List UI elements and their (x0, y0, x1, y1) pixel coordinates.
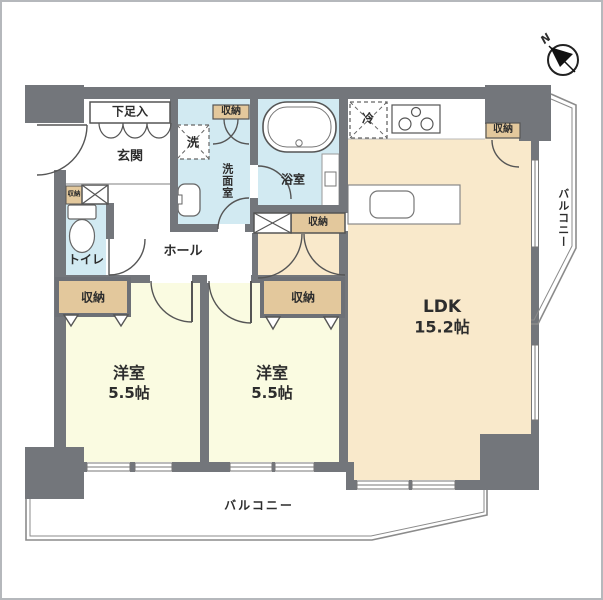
wall-top (77, 87, 485, 99)
label-entrance: 玄関 (117, 150, 143, 164)
wall-right-a (531, 139, 539, 160)
window (87, 463, 130, 471)
label-hall: ホール (163, 245, 202, 259)
window (135, 463, 172, 471)
label-bedroom1-name: 洋室 (113, 366, 145, 383)
pillar-bottom-right (480, 434, 539, 490)
window (532, 345, 539, 420)
wall-ldk-left (339, 231, 348, 472)
wall-washroom-bottom (170, 224, 218, 232)
wall-ldk-bottom-a (352, 480, 357, 490)
compass (548, 45, 578, 75)
toilet-bowl (70, 220, 95, 253)
label-closet2: 収納 (291, 292, 315, 305)
wall-bedroom-divider (200, 283, 209, 468)
wall-washroom-left (170, 99, 178, 232)
balcony-bottom-inner (30, 490, 484, 536)
wall-bottom-b (130, 462, 135, 472)
label-bedroom2-size: 5.5帖 (251, 386, 293, 402)
label-balcony-bottom: バルコニー (224, 500, 294, 513)
label-mid-storage: 収納 (308, 218, 328, 229)
label-bathroom: 浴室 (281, 174, 305, 187)
stove (392, 105, 440, 133)
wall-hall-bottom-b (192, 275, 207, 283)
compass-arrow (550, 47, 573, 67)
pillar-top-right-ext (519, 124, 551, 141)
label-bedroom2-name: 洋室 (256, 366, 288, 383)
bathtub-inner (268, 107, 331, 147)
wall-bath-bottom (250, 205, 348, 213)
pillar-top-left (25, 85, 84, 123)
label-washroom-storage: 収納 (221, 107, 241, 118)
label-ldk-storage: 収納 (493, 125, 513, 136)
window (230, 463, 272, 471)
ldk-floor (348, 99, 531, 480)
kitchen-sink (370, 191, 414, 218)
floor-plan: 下足入 玄関 洗 収納 洗面室 浴室 冷 収納 ホール 収納 トイレ 収納 収納… (0, 0, 603, 600)
wall-bottom-c (172, 462, 230, 472)
toilet-tank (68, 205, 96, 219)
window (357, 481, 409, 489)
wall-toilet-right (106, 203, 114, 239)
label-toilet-storage: 収納 (68, 191, 81, 198)
toilet-fixture (68, 205, 96, 253)
shoe-cabinet-doors (99, 123, 171, 138)
window (275, 463, 314, 471)
label-ldk-size: 15.2帖 (414, 320, 469, 337)
label-washroom: 洗面室 (221, 163, 233, 199)
pillar-bottom-left (25, 447, 84, 499)
wall-right-b (531, 247, 539, 345)
label-toilet: トイレ (68, 254, 104, 267)
label-ldk-name: LDK (423, 299, 461, 317)
label-bedroom1-size: 5.5帖 (108, 386, 150, 402)
wall-left (54, 170, 66, 472)
balcony-bottom-outer (26, 490, 487, 540)
label-washer: 洗 (187, 137, 199, 150)
wall-bath-right (339, 99, 348, 213)
entrance-door-arc (37, 125, 87, 175)
bath-control (325, 172, 336, 186)
toilet-door-arc (109, 239, 145, 275)
pillar-top-right (485, 85, 551, 124)
door-leaf-ldk (252, 233, 258, 276)
wall-washroom-bath (250, 99, 258, 165)
window (532, 160, 539, 247)
window (412, 481, 455, 489)
label-refrigerator: 冷 (362, 113, 374, 126)
label-closet1: 収納 (81, 292, 105, 305)
label-shoe-cabinet: 下足入 (112, 106, 148, 119)
label-balcony-right: バルコニー (557, 188, 569, 248)
